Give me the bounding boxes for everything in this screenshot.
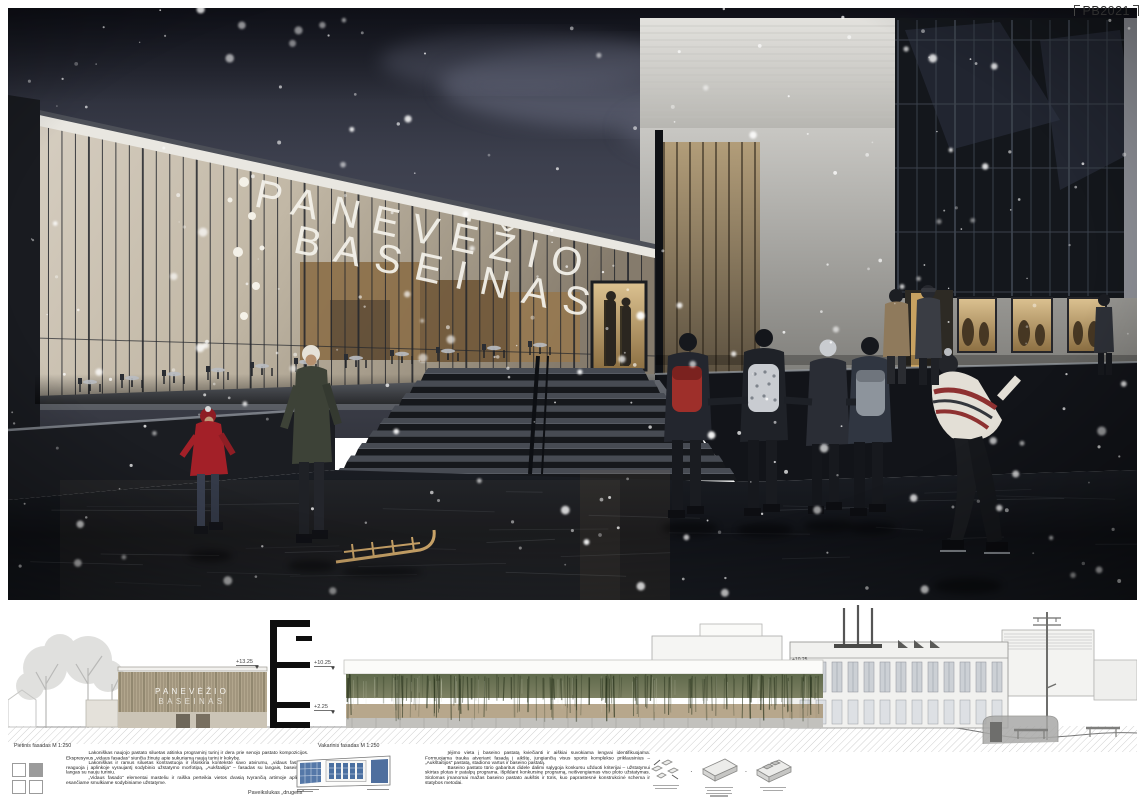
elevation-drawings: PANEVĖŽIO BASEINAS +13.25 +10.25 +2.25 [8, 600, 1137, 752]
mini-picture-captions [297, 789, 389, 793]
logo-square [29, 780, 43, 794]
painting-caption: Paveikslukas „drugelis“ [248, 790, 304, 795]
illegible-caption [705, 787, 733, 797]
crop-mark-icon [1133, 5, 1139, 16]
competition-code-label: PB2021 [1083, 4, 1130, 18]
butterfly-picture [295, 754, 392, 789]
ground-hatch [8, 726, 640, 744]
vignette [8, 8, 1137, 600]
west-elevation-label: Vakarinis fasadas M 1:250 [318, 743, 379, 748]
main-rendering: PANEVĖŽIO BASEINAS [8, 8, 1137, 600]
presentation-board: PB2021 [0, 0, 1145, 809]
paragraph: Įėjimo vieta į baseino pastatą kviečiant… [425, 751, 650, 766]
logo-square [12, 763, 26, 777]
paragraph: Baseino pastato tūrio gabaritus didele d… [425, 766, 650, 786]
illegible-caption [760, 787, 786, 791]
competition-code: PB2021 [1074, 4, 1139, 18]
paragraph: Lakoniškas ir ramus siluetas kontrastuoj… [66, 761, 308, 776]
diagram-slab-with-program [753, 755, 793, 791]
quadrant-logo [12, 763, 43, 794]
south-facade-sign-1: PANEVĖŽIO [155, 687, 229, 696]
south-elevation-label: Pietinis fasadas M 1:250 [14, 743, 71, 748]
south-facade-sign-2: BASEINAS [158, 697, 225, 706]
level-mark-upper: +10.25 [314, 660, 331, 666]
left-text-block: Lakoniškas naujojo pastato siluetas atit… [66, 751, 308, 786]
svg-text:+13.25: +13.25 [236, 659, 253, 665]
illegible-caption [653, 785, 679, 789]
logo-square-filled [29, 763, 43, 777]
separator-dot: · [690, 767, 693, 776]
diagram-slab [699, 755, 739, 797]
paragraph: „Vidaus fasado“ elementai masteliu ir ra… [66, 776, 308, 786]
logo-square [12, 780, 26, 794]
illegible-caption [367, 789, 389, 793]
diagram-context [648, 755, 684, 789]
crop-mark-icon [1074, 5, 1080, 16]
center-text-block: Įėjimo vieta į baseino pastatą kviečiant… [425, 751, 650, 786]
level-mark-lower: +2.25 [314, 704, 328, 710]
concept-diagrams: · · [648, 755, 793, 797]
separator-dot: · [745, 767, 748, 776]
